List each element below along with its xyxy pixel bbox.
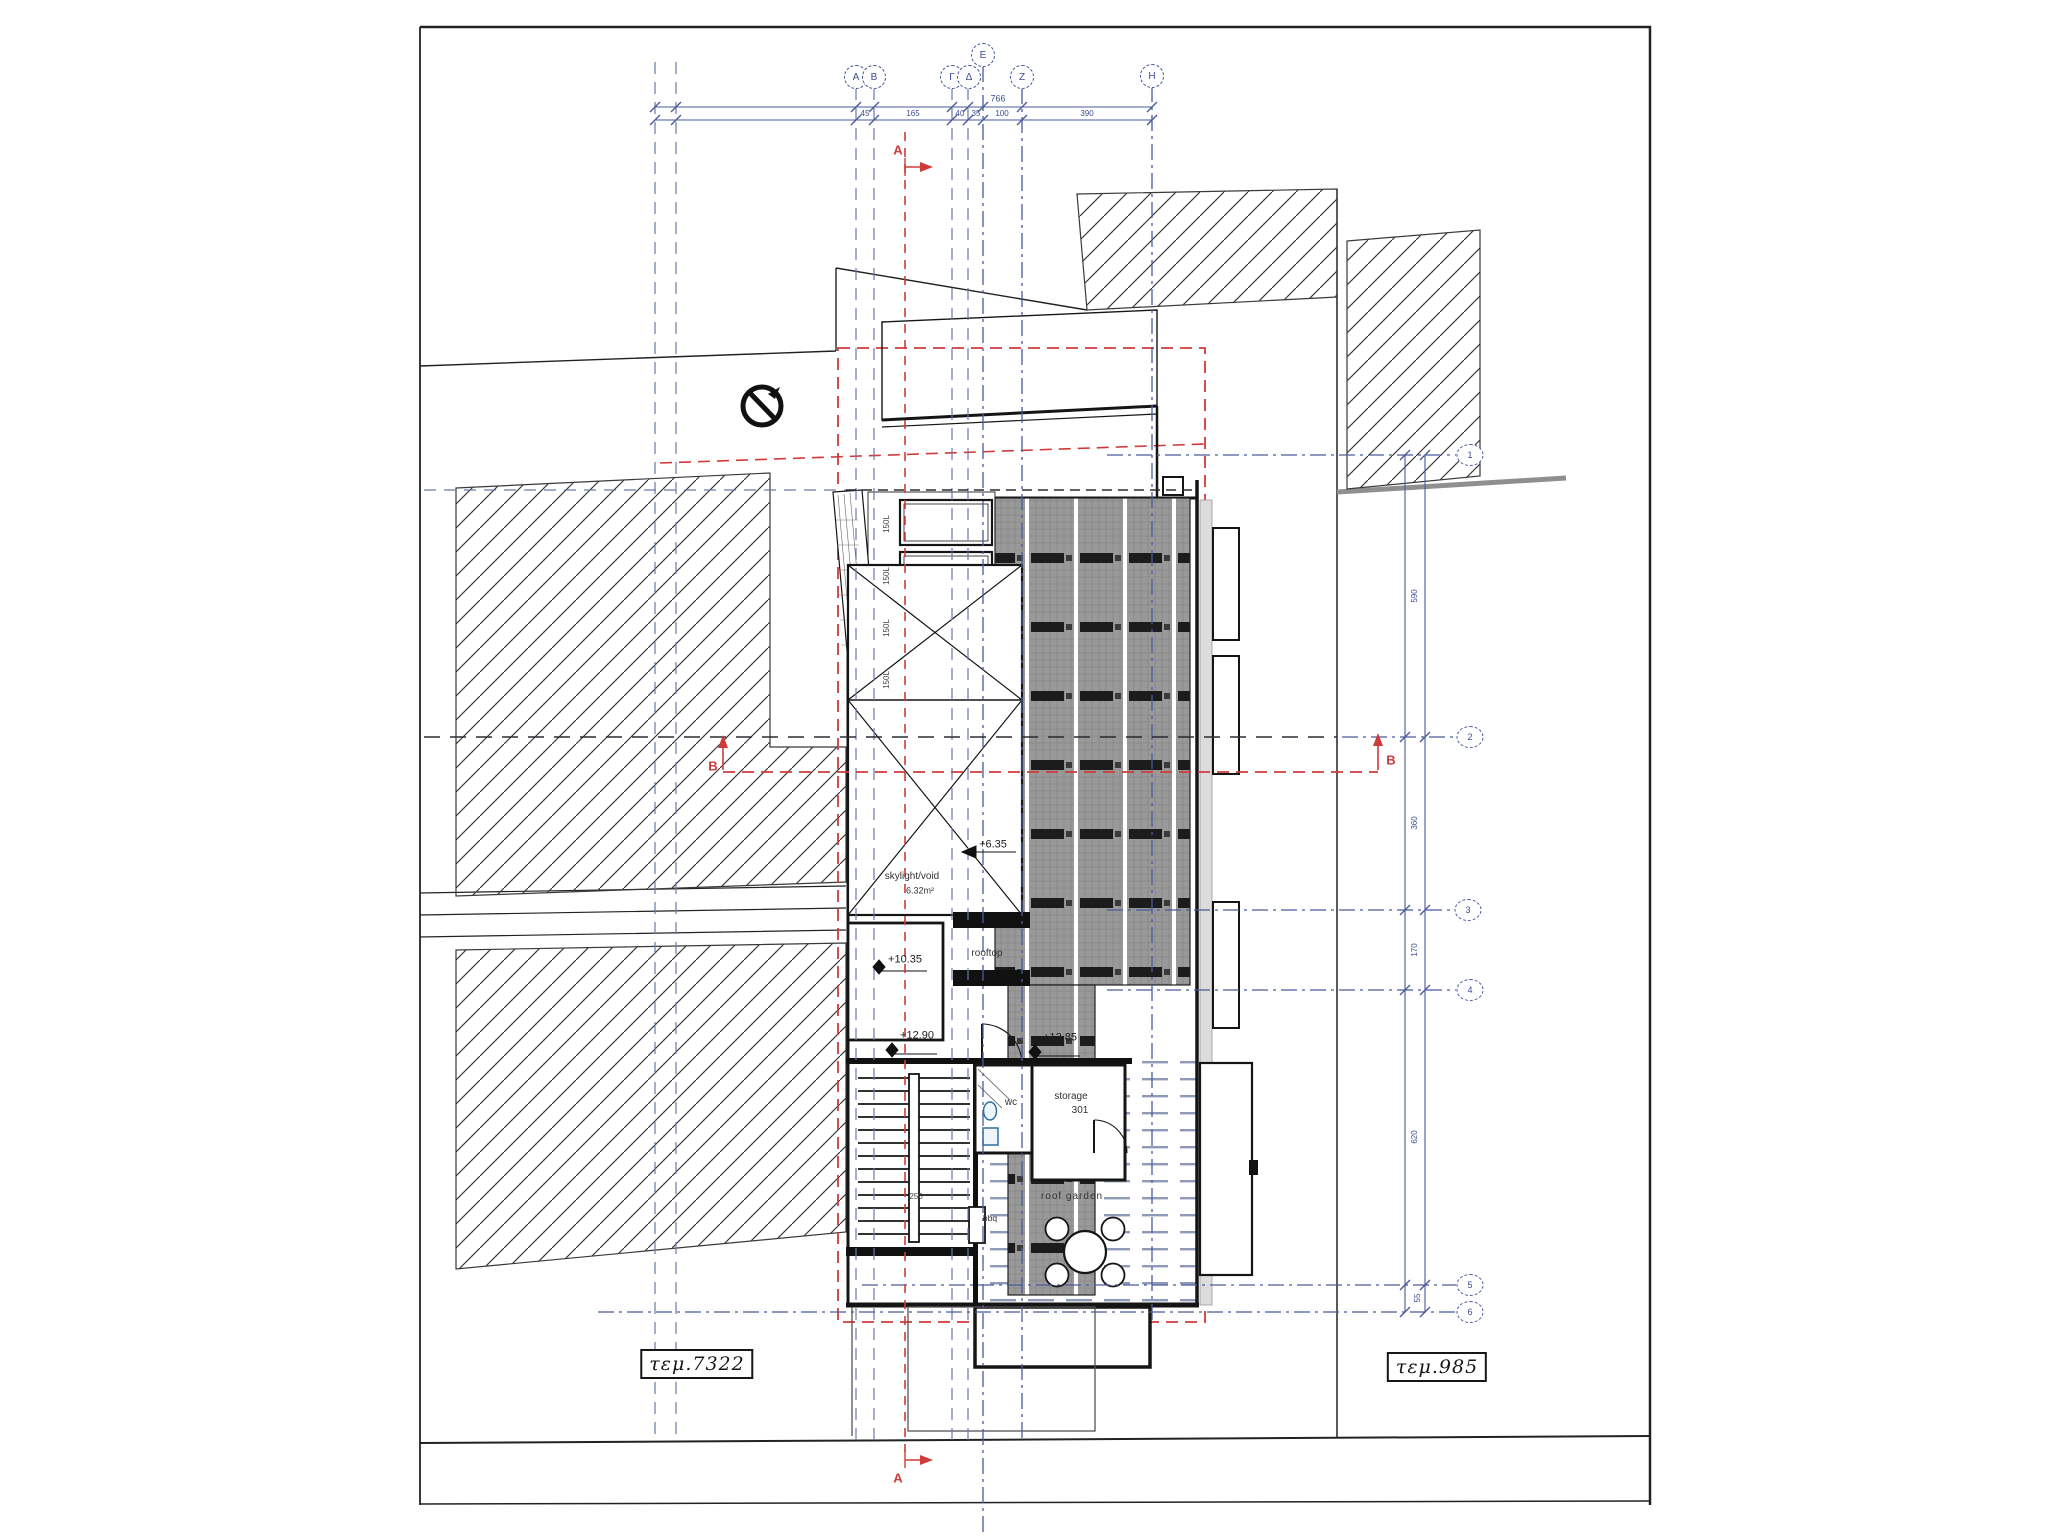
hatch-top-center [1077,189,1337,310]
grid-bubble-zeta: Ζ [1010,65,1034,89]
section-label-b-left: B [708,760,717,773]
section-label-a-bottom: A [893,1472,902,1485]
dim-top-seg-3: 40 [956,110,965,118]
grid-bubble-delta: Δ [957,65,981,89]
level-roof: +12.85 [1043,1033,1077,1044]
grid-bubble-beta: Β [862,65,886,89]
dim-top-seg-4: 35 [972,110,981,118]
grid-bubble-2: 2 [1457,726,1484,748]
tank-label-3: 150L [883,619,891,637]
grid-bubble-eta: Η [1140,64,1164,88]
grid-bubble-5: 5 [1457,1274,1484,1296]
level-terrace: +10.35 [888,955,922,966]
label-storage: storage [1054,1092,1087,1102]
dim-right-seg-1: 590 [1411,589,1419,602]
dim-top-seg-2: 165 [906,110,919,118]
dim-top-total: 766 [990,95,1005,104]
label-rooftop: rooftop [971,949,1002,959]
terrace-room [848,923,943,1040]
section-label-b-right: B [1386,754,1395,767]
tank-label-2: 150L [883,567,891,585]
parcel-label-left: τεμ.7322 [640,1349,753,1379]
storage-room [1032,1065,1125,1180]
solar-panel-array [995,498,1190,985]
tank-label-4: 150L [883,671,891,689]
stairs [846,1074,975,1256]
no-build-symbol [743,387,781,425]
grid-bubble-1: 1 [1457,444,1484,466]
dim-right-seg-2: 360 [1411,816,1419,829]
grid-bubble-3: 3 [1455,899,1482,921]
label-bbq: bbq [983,1214,997,1223]
grid-bubble-epsilon: Ε [971,43,995,67]
label-roof-garden: roof garden [1041,1192,1103,1202]
parcel-label-right: τεμ.985 [1387,1352,1487,1382]
plan-linework [0,0,2048,1536]
balcony [1200,1063,1258,1275]
level-stair: +12.90 [900,1031,934,1042]
label-storage-number: 301 [1072,1106,1089,1116]
label-skylight-void: skylight/void [885,872,939,882]
grid-bubble-6: 6 [1457,1301,1484,1323]
dim-right-seg-3: 170 [1411,943,1419,956]
section-label-a-top: A [893,144,902,157]
dim-top-seg-1: 45 [861,110,870,118]
tank-label-1: 150L [883,515,891,533]
label-skylight-area: 6.32m² [906,887,934,896]
dim-right-seg-5: 55 [1414,1294,1422,1303]
label-stair-dim: 250 [909,1193,922,1201]
dim-top-seg-6: 390 [1080,110,1093,118]
label-wc: wc [1005,1098,1017,1108]
dim-right-seg-4: 620 [1411,1130,1419,1143]
hatch-left-lower [456,943,846,1269]
floor-plan-sheet: Α Β Γ Δ Ε Ζ Η 1 2 3 4 5 6 A A B B +6.35 … [0,0,2048,1536]
level-skylight: +6.35 [979,840,1007,851]
hatch-left-upper [456,473,846,896]
upper-canopy [882,310,1157,420]
dim-top-seg-5: 100 [995,110,1008,118]
grid-bubble-4: 4 [1457,979,1484,1001]
